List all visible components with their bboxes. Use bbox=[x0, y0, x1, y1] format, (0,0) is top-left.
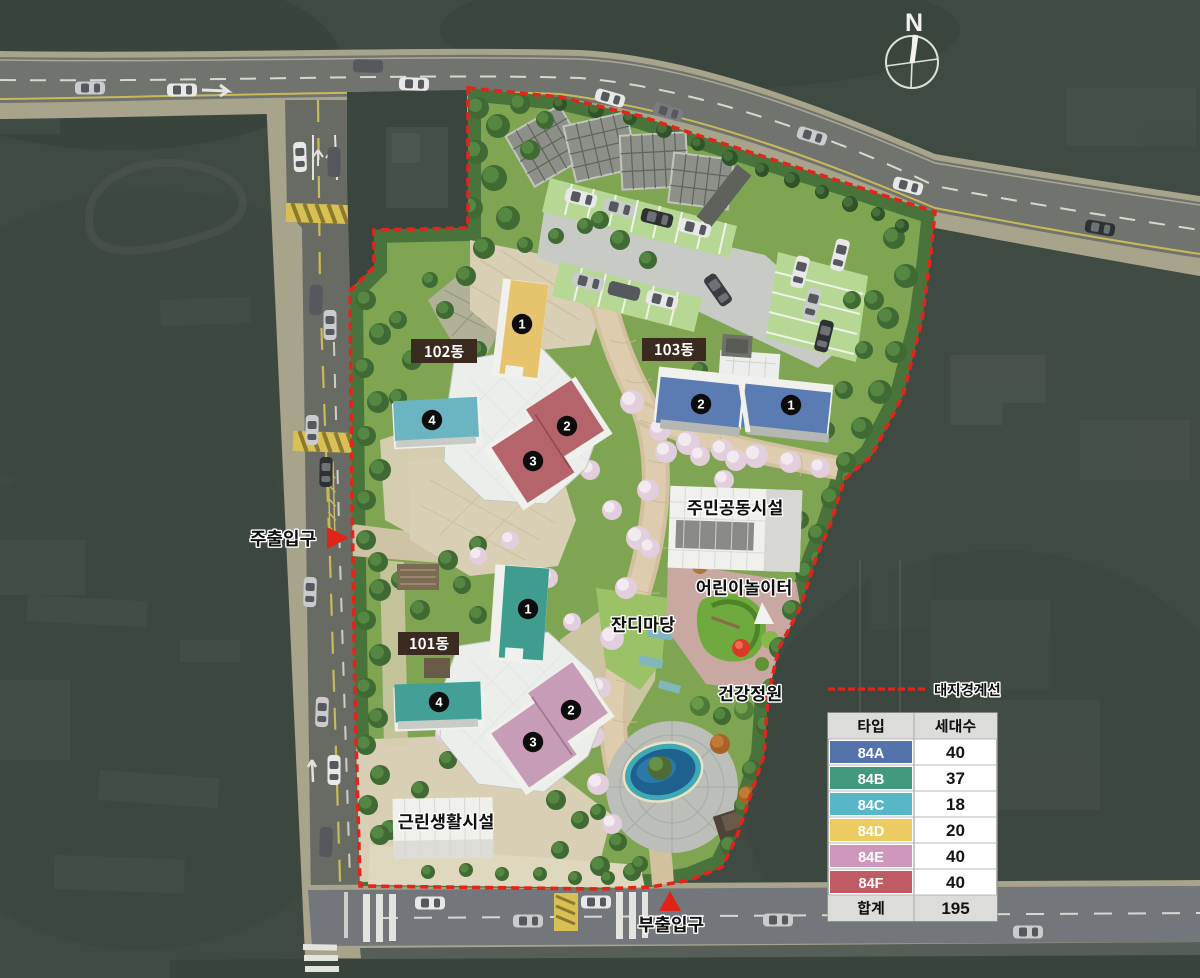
svg-text:4: 4 bbox=[428, 412, 436, 427]
svg-text:4: 4 bbox=[435, 694, 443, 709]
svg-text:37: 37 bbox=[946, 769, 965, 788]
svg-text:N: N bbox=[905, 9, 923, 37]
svg-text:3: 3 bbox=[529, 734, 536, 749]
svg-text:2: 2 bbox=[567, 702, 574, 717]
svg-text:84D: 84D bbox=[858, 824, 885, 840]
svg-text:84E: 84E bbox=[858, 850, 884, 866]
svg-text:18: 18 bbox=[946, 795, 965, 814]
svg-text:84F: 84F bbox=[859, 876, 884, 892]
svg-text:2: 2 bbox=[563, 418, 570, 433]
svg-text:40: 40 bbox=[946, 873, 965, 892]
svg-text:3: 3 bbox=[529, 453, 536, 468]
svg-text:84B: 84B bbox=[858, 772, 885, 788]
svg-text:2: 2 bbox=[697, 396, 704, 411]
svg-text:1: 1 bbox=[787, 397, 794, 412]
svg-text:84C: 84C bbox=[858, 798, 885, 814]
svg-text:1: 1 bbox=[524, 601, 531, 616]
svg-text:20: 20 bbox=[946, 821, 965, 840]
svg-text:195: 195 bbox=[941, 899, 969, 918]
svg-text:1: 1 bbox=[518, 316, 525, 331]
svg-text:40: 40 bbox=[946, 847, 965, 866]
svg-text:40: 40 bbox=[946, 743, 965, 762]
svg-text:84A: 84A bbox=[858, 746, 885, 762]
